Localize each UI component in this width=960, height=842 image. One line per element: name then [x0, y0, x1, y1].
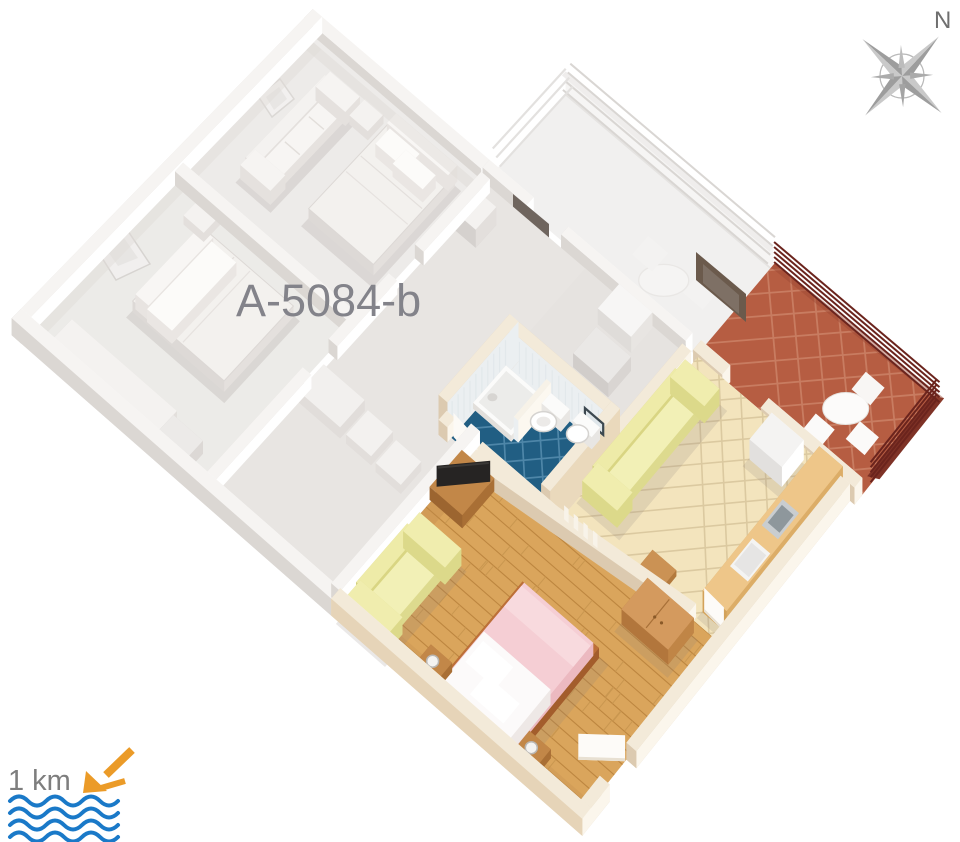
svg-text:1 km: 1 km	[8, 765, 71, 797]
svg-text:N: N	[934, 7, 951, 34]
svg-text:A-5084-b: A-5084-b	[236, 275, 421, 326]
